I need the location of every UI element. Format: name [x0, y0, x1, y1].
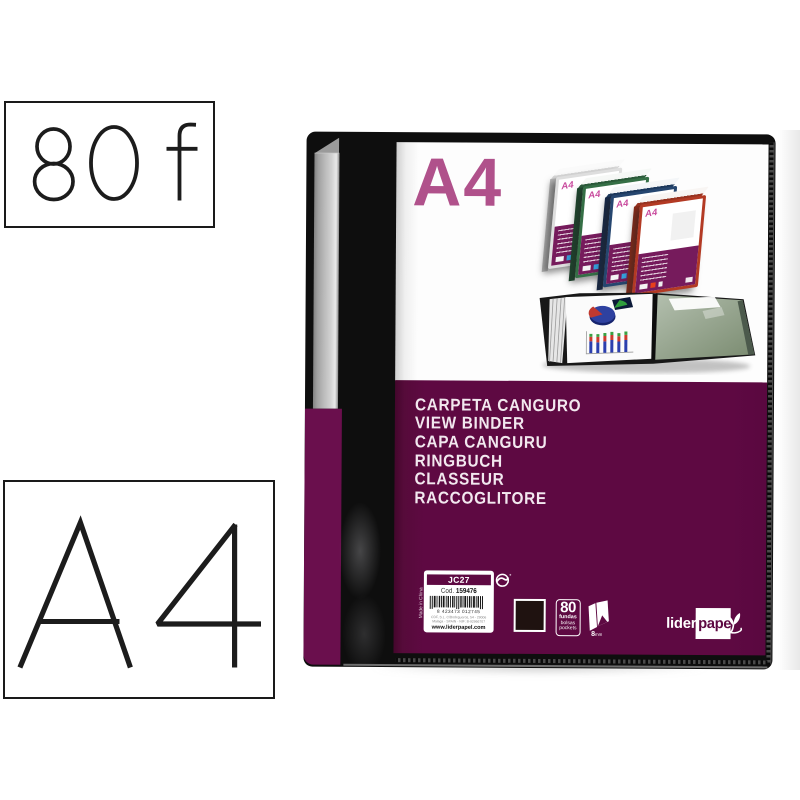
svg-text:8 423473 012745: 8 423473 012745 — [437, 608, 480, 613]
svg-text:www.liderpapel.com: www.liderpapel.com — [430, 624, 485, 630]
svg-text:CDF, S.L. C/Bodegueros, 54 - 2: CDF, S.L. C/Bodegueros, 54 - 29006 — [431, 615, 486, 619]
svg-text:Made in China: Made in China — [418, 586, 424, 617]
svg-text:Malaga - SPAIN - NIF: B-929667: Malaga - SPAIN - NIF: B-92966707 — [432, 619, 485, 623]
svg-text:JC27: JC27 — [447, 574, 469, 584]
svg-text:8mm: 8mm — [590, 630, 602, 637]
svg-text:Cod. 159476: Cod. 159476 — [440, 587, 476, 595]
